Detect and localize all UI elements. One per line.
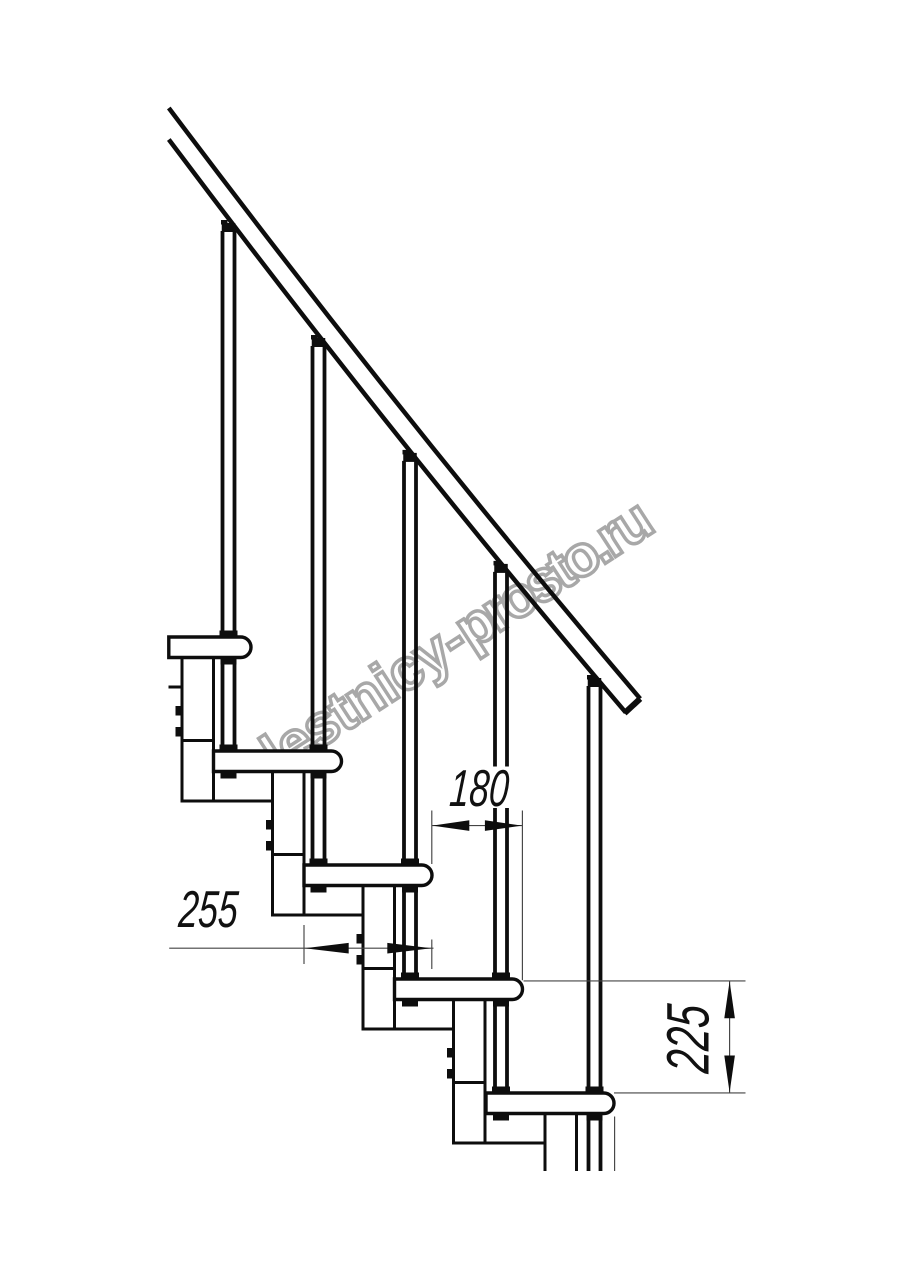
- svg-text:180: 180: [448, 761, 511, 818]
- svg-text:255: 255: [176, 881, 240, 938]
- svg-text:225: 225: [654, 1002, 722, 1076]
